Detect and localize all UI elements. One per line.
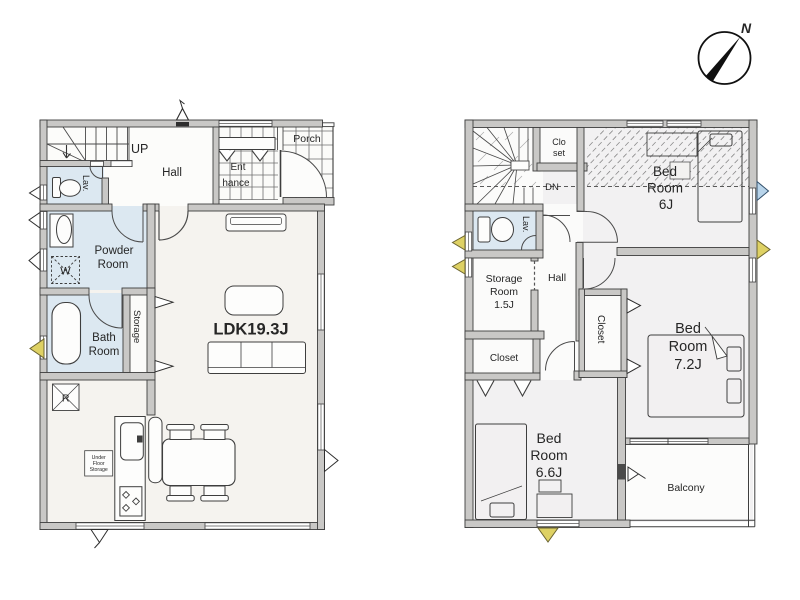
svg-text:Bed: Bed xyxy=(537,430,562,446)
svg-text:DN: DN xyxy=(545,182,559,193)
svg-text:Room: Room xyxy=(647,181,683,196)
svg-text:1.5J: 1.5J xyxy=(494,299,514,311)
svg-text:Room: Room xyxy=(490,286,518,298)
svg-text:W: W xyxy=(60,266,71,278)
svg-text:Room: Room xyxy=(669,339,708,355)
svg-text:hance: hance xyxy=(222,178,250,189)
svg-text:Storage: Storage xyxy=(131,310,142,343)
svg-text:N: N xyxy=(741,20,752,36)
svg-text:Room: Room xyxy=(530,447,567,463)
svg-text:Bed: Bed xyxy=(675,321,701,337)
svg-text:Powder: Powder xyxy=(95,245,134,257)
svg-text:LDK19.3J: LDK19.3J xyxy=(213,321,288,339)
svg-text:6J: 6J xyxy=(659,197,673,212)
svg-text:Hall: Hall xyxy=(162,167,182,179)
svg-text:set: set xyxy=(553,148,566,158)
svg-text:Lav.: Lav. xyxy=(521,216,531,232)
svg-text:Lav.: Lav. xyxy=(81,175,91,191)
svg-text:Bath: Bath xyxy=(92,332,116,344)
svg-text:Room: Room xyxy=(89,346,120,358)
svg-text:7.2J: 7.2J xyxy=(674,357,701,373)
svg-text:Bed: Bed xyxy=(653,164,677,179)
svg-text:Closet: Closet xyxy=(490,353,519,364)
svg-text:Room: Room xyxy=(98,259,129,271)
svg-text:UP: UP xyxy=(131,142,148,156)
svg-text:Storage: Storage xyxy=(90,467,108,473)
svg-text:Closet: Closet xyxy=(595,315,606,344)
svg-text:Balcony: Balcony xyxy=(667,482,705,494)
svg-text:Storage: Storage xyxy=(486,273,523,285)
svg-text:Clo: Clo xyxy=(552,137,566,147)
svg-text:6.6J: 6.6J xyxy=(536,464,562,480)
svg-text:Porch: Porch xyxy=(293,133,321,145)
svg-text:R: R xyxy=(62,393,70,405)
svg-text:Ent: Ent xyxy=(230,162,245,173)
svg-text:Hall: Hall xyxy=(548,272,566,284)
